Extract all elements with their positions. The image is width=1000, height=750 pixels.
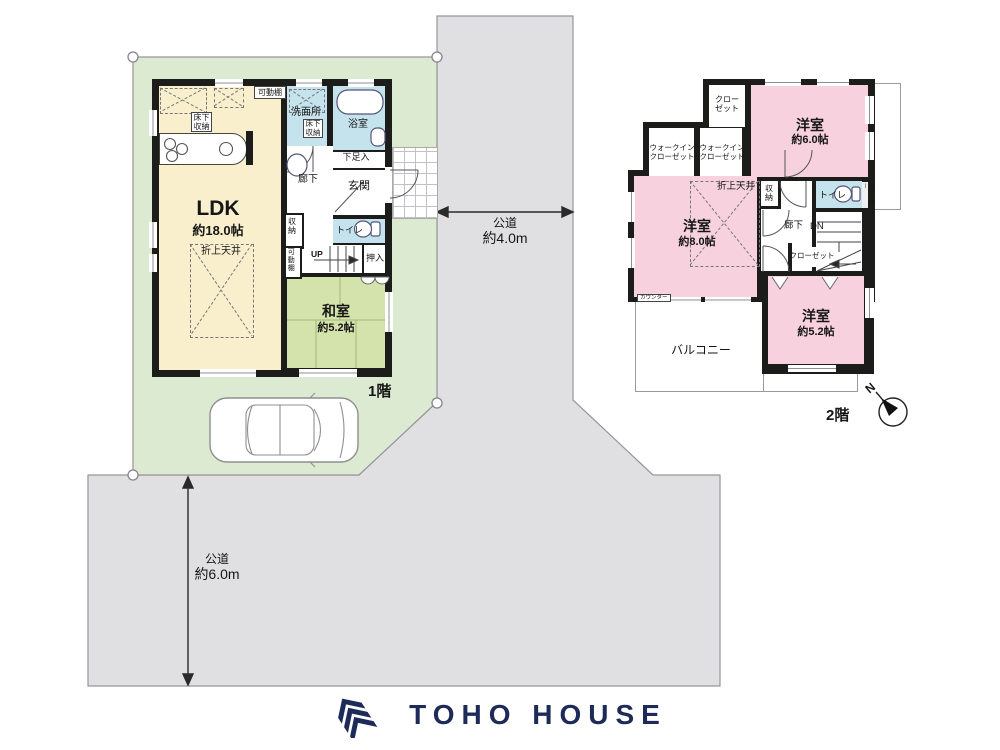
f1-porch-tiles <box>392 147 438 219</box>
f2-floor-label: 2階 <box>826 407 849 425</box>
f2-room8-name: 洋室 <box>683 218 711 235</box>
f1-genkan-label: 玄関 <box>348 180 370 193</box>
f1-washitsu-name: 和室 <box>322 303 350 320</box>
f2-shuunou-label: 収納 <box>764 184 773 208</box>
f1-ldk-name: LDK <box>196 197 239 222</box>
window <box>299 369 357 377</box>
f1-kadoudana-top-label: 可動棚 <box>254 86 286 99</box>
f1-upper-cabinet-dashed-2 <box>214 88 244 108</box>
f1-up-label: UP <box>311 249 323 259</box>
window <box>705 297 751 303</box>
f2-rouka-label: 廊下 <box>784 220 803 231</box>
window <box>865 132 874 160</box>
f1-upper-cabinet-dashed-1 <box>160 88 207 114</box>
f2-counter-label: カウンター <box>861 183 874 207</box>
f2-wic-left-label: ウォークインクローゼット <box>648 144 696 162</box>
window <box>865 96 874 124</box>
road-east-label: 公道 約4.0m <box>482 216 527 247</box>
window <box>215 79 243 87</box>
f1-senmenjo-label: 洗面所 <box>291 107 321 119</box>
f2-closet-mid-label: クローゼット <box>790 252 835 261</box>
window <box>296 79 322 87</box>
road-east-width: 約4.0m <box>482 230 527 247</box>
f1-washitsu-size: 約5.2帖 <box>317 322 354 335</box>
window <box>788 365 836 372</box>
f1-rouka-label: 廊下 <box>298 174 318 186</box>
window <box>149 222 157 248</box>
f2-room6-name: 洋室 <box>796 117 824 134</box>
f2-room6-size: 約6.0帖 <box>791 134 828 147</box>
f2-dn-label: DN <box>810 221 824 232</box>
f1-yukashita-senmen-label: 床下収納 <box>303 119 323 138</box>
f2-counter-window-label: カウンター <box>637 294 671 302</box>
window <box>628 192 635 222</box>
road-south-width: 約6.0m <box>194 566 239 583</box>
window <box>200 369 256 377</box>
f1-kadoudana-side-label: 可動棚 <box>286 248 294 274</box>
window <box>149 254 157 272</box>
f2-eaves-right <box>872 83 901 210</box>
road-east-name: 公道 <box>482 216 527 230</box>
f1-entrance-door-gap <box>385 167 392 203</box>
f1-ldk-size: 約18.0帖 <box>192 223 243 238</box>
f2-wic-right-label: ウォークインクローゼット <box>698 144 746 162</box>
f1-getabako-label: 下足入 <box>342 152 369 163</box>
f1-yukashita-kitchen-label: 床下収納 <box>191 112 212 132</box>
f1-oshiire-label: 押入 <box>366 253 384 264</box>
logo-text: TOHO HOUSE <box>409 699 667 731</box>
window <box>817 79 849 86</box>
road-south-name: 公道 <box>194 552 239 566</box>
f1-oriage-ceiling-dashed <box>190 244 254 338</box>
f1-floor-label: 1階 <box>368 383 391 401</box>
f2-shuunou-divider <box>778 181 781 209</box>
road-south-label: 公道 約6.0m <box>194 552 239 583</box>
f1-kitchen-counter <box>159 133 247 165</box>
f1-yokushitsu-label: 浴室 <box>348 119 368 131</box>
f2-room8-size: 約8.0帖 <box>678 236 715 249</box>
window <box>865 288 874 318</box>
f2-oriage-label: 折上天井 <box>717 181 755 192</box>
f1-shuunou-label: 収納 <box>287 217 296 243</box>
f1-kitchen-wall-stub <box>246 131 253 165</box>
toho-house-logo-mark <box>333 692 385 738</box>
f1-room-yokushitsu <box>333 86 385 150</box>
floorplan-canvas: 可動棚 床下収納 洗面所 床下収納 浴室 下足入 玄関 廊下 収納 トイレ 可動… <box>0 0 1000 750</box>
window <box>628 238 635 268</box>
window <box>149 110 157 136</box>
window <box>385 292 393 332</box>
window <box>765 79 801 86</box>
window <box>348 79 374 87</box>
f1-oriage-label: 折上天井 <box>201 246 241 258</box>
f2-room5-name: 洋室 <box>802 308 830 325</box>
f2-balcony-label: バルコニー <box>671 343 731 357</box>
f1-toire-label: トイレ <box>336 225 363 236</box>
logo: TOHO HOUSE <box>0 692 1000 738</box>
f1-stairs <box>300 245 362 273</box>
f2-closet-top-label: クローゼット <box>713 95 741 114</box>
f2-toire-label: トイレ <box>819 190 846 201</box>
f2-room5-size: 約5.2帖 <box>797 326 834 339</box>
